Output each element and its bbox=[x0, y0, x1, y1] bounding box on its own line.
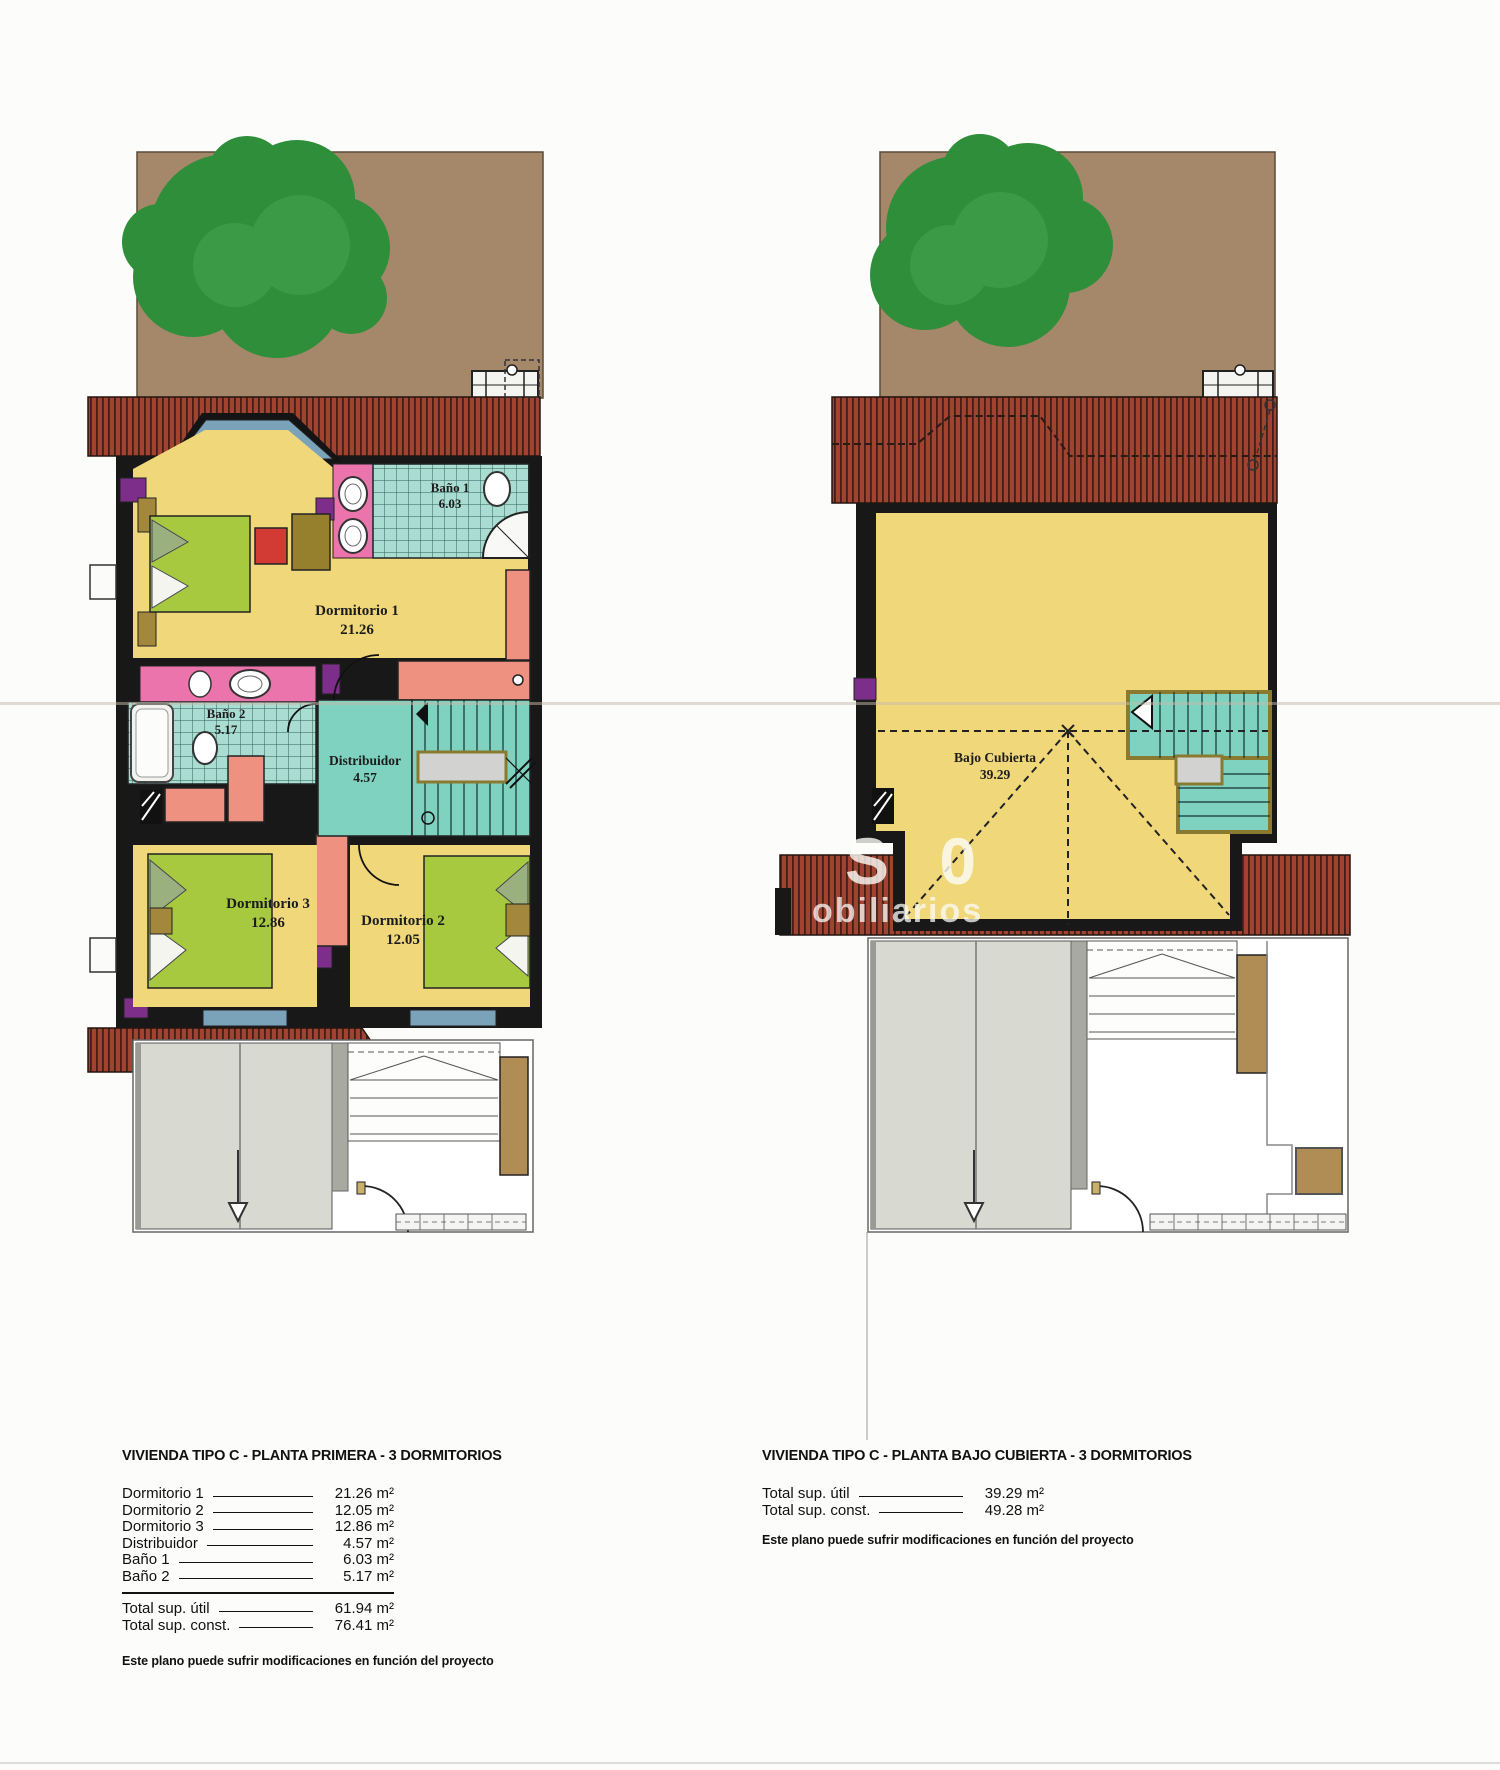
left-plan-note: Este plano puede sufrir modificaciones e… bbox=[122, 1654, 394, 1668]
table-row: Dormitorio 212.05 m² bbox=[122, 1503, 394, 1520]
table-total-row: Total sup. útil39.29 m² bbox=[762, 1486, 1044, 1503]
table-row: Dormitorio 121.26 m² bbox=[122, 1486, 394, 1503]
left-plan-title: VIVIENDA TIPO C - PLANTA PRIMERA - 3 DOR… bbox=[122, 1448, 394, 1464]
label-dorm1: Dormitorio 1 21.26 bbox=[277, 602, 437, 640]
dresser-olive bbox=[292, 514, 330, 570]
bano2-vanity bbox=[140, 666, 316, 702]
right-spec-table: VIVIENDA TIPO C - PLANTA BAJO CUBIERTA -… bbox=[762, 1448, 1044, 1547]
label-distribuidor: Distribuidor 4.57 bbox=[313, 753, 417, 787]
fold-crease-bottom bbox=[0, 1762, 1500, 1764]
left-ground-floor bbox=[133, 1040, 533, 1232]
table-total-row: Total sup. const.49.28 m² bbox=[762, 1503, 1044, 1520]
left-hatch-block bbox=[140, 790, 162, 824]
table-row: Dormitorio 312.86 m² bbox=[122, 1519, 394, 1536]
label-dorm2: Dormitorio 2 12.05 bbox=[323, 912, 483, 950]
table-rule bbox=[122, 1592, 394, 1594]
nightstand-red bbox=[255, 528, 287, 564]
brochure-sheet: S 0 obiliarios Baño 1 6.03 Dormitorio 1 … bbox=[0, 0, 1500, 1770]
fold-crease-vertical bbox=[866, 1232, 868, 1440]
table-total-row: Total sup. const.76.41 m² bbox=[122, 1618, 394, 1635]
watermark-logo: S 0 bbox=[845, 828, 992, 894]
table-row: Baño 25.17 m² bbox=[122, 1569, 394, 1586]
right-plan-title: VIVIENDA TIPO C - PLANTA BAJO CUBIERTA -… bbox=[762, 1448, 1044, 1464]
right-hatch-block bbox=[872, 788, 894, 824]
label-bano2: Baño 2 5.17 bbox=[178, 706, 274, 739]
right-ground-floor bbox=[868, 938, 1348, 1232]
right-plan bbox=[775, 134, 1350, 1232]
label-bano1: Baño 1 6.03 bbox=[400, 480, 500, 513]
left-spec-table: VIVIENDA TIPO C - PLANTA PRIMERA - 3 DOR… bbox=[122, 1448, 394, 1668]
right-roof-top bbox=[832, 397, 1277, 503]
label-bajo-cubierta: Bajo Cubierta 39.29 bbox=[915, 750, 1075, 784]
watermark-text: obiliarios bbox=[812, 894, 983, 928]
left-plan bbox=[88, 136, 543, 1232]
table-row: Baño 16.03 m² bbox=[122, 1552, 394, 1569]
stair-landing bbox=[418, 752, 506, 782]
right-plan-note: Este plano puede sufrir modificaciones e… bbox=[762, 1533, 1044, 1547]
table-row: Distribuidor4.57 m² bbox=[122, 1536, 394, 1553]
fold-crease bbox=[0, 702, 1500, 705]
table-total-row: Total sup. útil61.94 m² bbox=[122, 1601, 394, 1618]
